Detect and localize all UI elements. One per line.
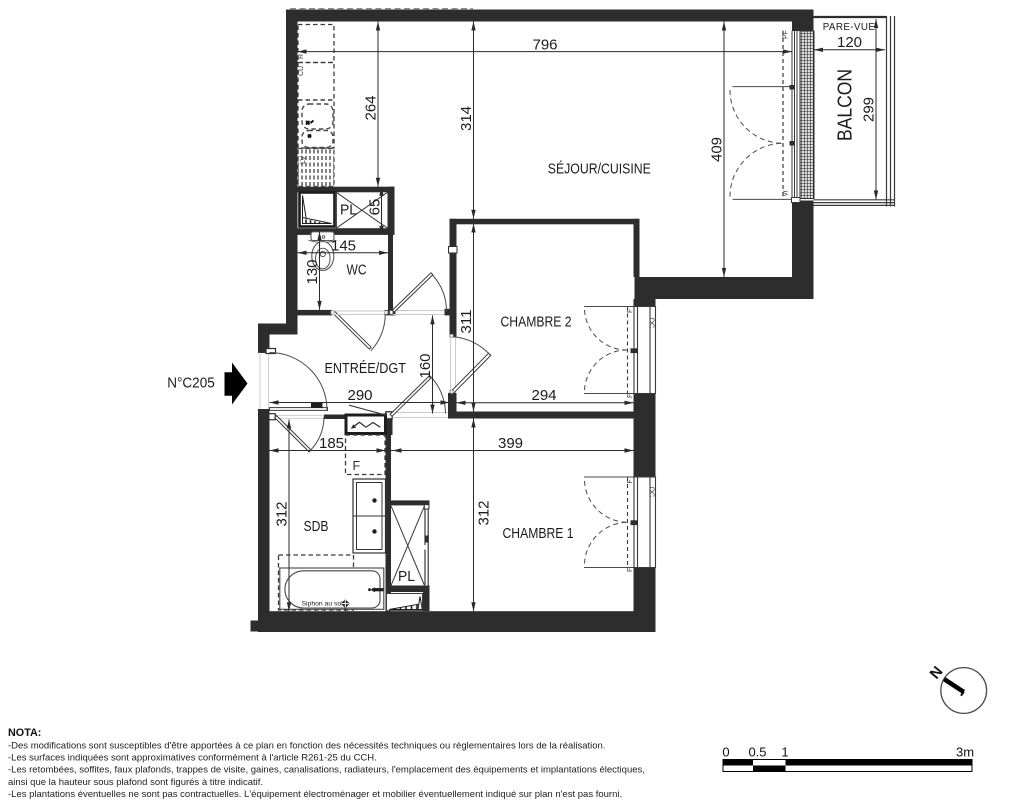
svg-text:OC: OC — [648, 318, 655, 329]
svg-text:312: 312 — [476, 500, 493, 525]
svg-text:-Des modifications sont suscep: -Des modifications sont susceptibles d'ê… — [8, 740, 605, 751]
svg-text:409: 409 — [709, 137, 726, 162]
svg-text:-Les surfaces indiquées sont a: -Les surfaces indiquées sont approximati… — [8, 753, 377, 764]
svg-text:299: 299 — [861, 97, 878, 122]
svg-text:F: F — [627, 568, 634, 572]
svg-text:PL: PL — [340, 201, 357, 218]
svg-text:145: 145 — [331, 238, 356, 255]
svg-text:399: 399 — [498, 435, 523, 452]
svg-text:ENTRÉE/DGT: ENTRÉE/DGT — [324, 360, 406, 377]
svg-text:130: 130 — [304, 259, 321, 284]
svg-text:F: F — [627, 309, 634, 313]
svg-text:F: F — [627, 479, 634, 483]
svg-text:65: 65 — [367, 199, 384, 216]
svg-text:312: 312 — [274, 501, 291, 526]
svg-text:294: 294 — [531, 387, 556, 404]
svg-text:R: R — [298, 54, 305, 59]
svg-text:SDB: SDB — [304, 518, 329, 535]
svg-text:BALCON: BALCON — [835, 69, 857, 141]
svg-text:160: 160 — [417, 353, 434, 378]
svg-text:0.5: 0.5 — [748, 745, 766, 760]
svg-text:314: 314 — [458, 106, 475, 131]
svg-text:185: 185 — [319, 435, 344, 452]
svg-text:Siphon au sol: Siphon au sol — [302, 601, 344, 608]
svg-text:N°C205: N°C205 — [167, 374, 215, 391]
svg-text:3m: 3m — [956, 745, 974, 760]
svg-text:ainsi que la hauteur sous plaf: ainsi que la hauteur sous plafond sont f… — [8, 777, 263, 788]
svg-text:120: 120 — [837, 34, 862, 51]
svg-text:F: F — [627, 394, 634, 398]
svg-text:SÉJOUR/CUISINE: SÉJOUR/CUISINE — [548, 161, 651, 178]
svg-text:796: 796 — [532, 37, 557, 54]
svg-text:CU: CU — [298, 66, 305, 76]
svg-text:0: 0 — [722, 745, 729, 760]
svg-text:311: 311 — [458, 310, 475, 334]
svg-text:-Les retombées, soffites, faux: -Les retombées, soffites, faux plafonds,… — [8, 765, 645, 776]
svg-text:NOTA:: NOTA: — [8, 727, 41, 739]
svg-text:OC: OC — [648, 487, 655, 498]
svg-text:CHAMBRE 2: CHAMBRE 2 — [501, 314, 572, 331]
svg-text:PL: PL — [398, 568, 415, 585]
svg-text:264: 264 — [363, 95, 380, 120]
svg-text:F: F — [353, 459, 361, 473]
svg-text:1: 1 — [781, 745, 788, 760]
svg-text:vr: vr — [783, 190, 790, 197]
svg-text:PF: PF — [783, 30, 790, 39]
svg-text:WC: WC — [347, 262, 367, 279]
svg-text:PARE-VUE: PARE-VUE — [823, 22, 876, 33]
svg-text:290: 290 — [347, 387, 372, 404]
svg-text:LV: LV — [300, 156, 307, 164]
svg-text:CHAMBRE 1: CHAMBRE 1 — [503, 525, 574, 542]
svg-text:-Les plantations éventuelles n: -Les plantations éventuelles ne sont pas… — [8, 789, 622, 800]
